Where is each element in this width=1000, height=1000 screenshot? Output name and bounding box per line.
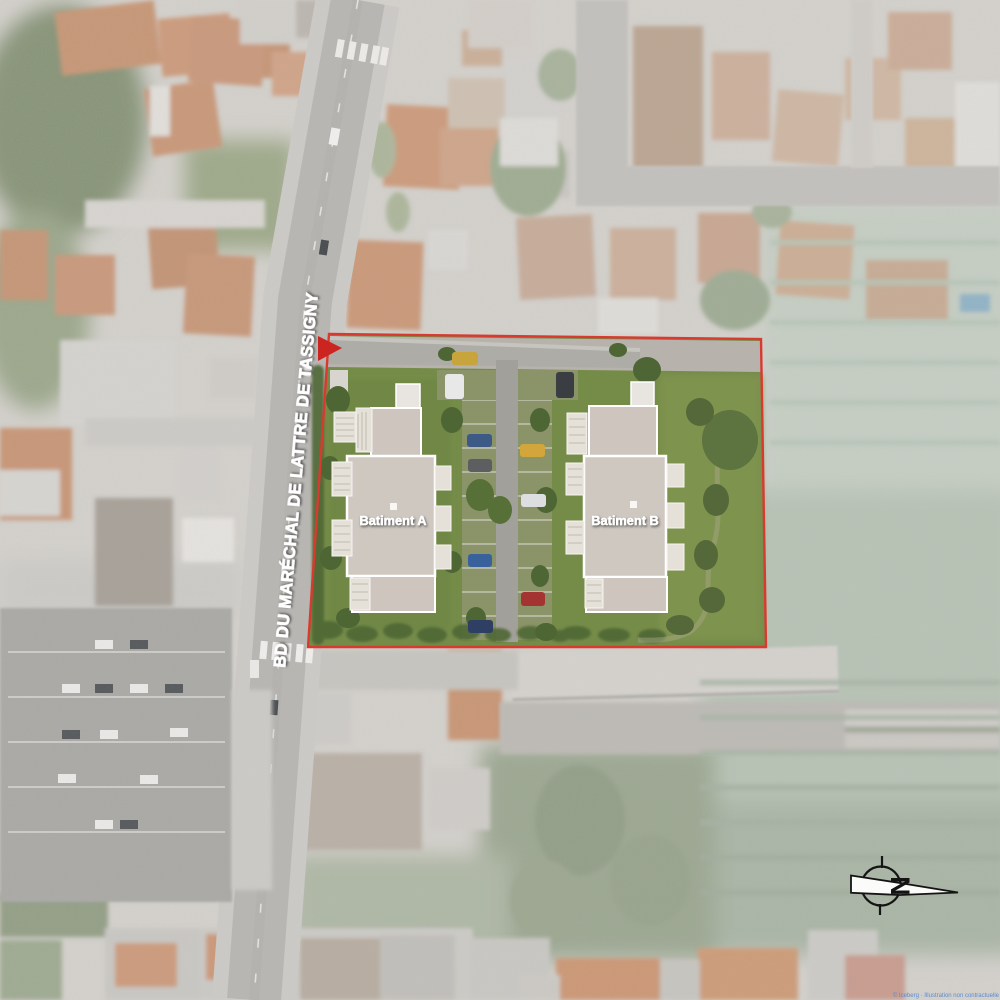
svg-text:Batiment B: Batiment B bbox=[591, 513, 659, 528]
svg-text:© Iceberg · Illustration non c: © Iceberg · Illustration non contractuel… bbox=[893, 992, 1000, 999]
svg-text:Batiment A: Batiment A bbox=[359, 513, 426, 528]
svg-text:N: N bbox=[885, 876, 915, 896]
